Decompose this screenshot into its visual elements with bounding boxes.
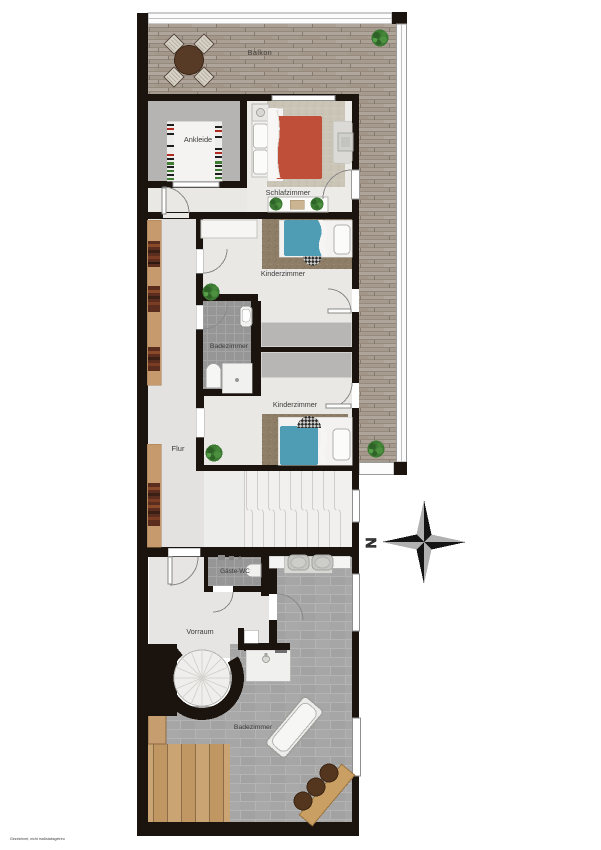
svg-text:Badezimmer: Badezimmer bbox=[234, 724, 273, 731]
svg-text:Vorraum: Vorraum bbox=[186, 627, 213, 636]
svg-text:Gäste-WC: Gäste-WC bbox=[220, 568, 250, 575]
svg-text:Ankleide: Ankleide bbox=[184, 135, 212, 144]
svg-text:Flur: Flur bbox=[172, 444, 185, 453]
svg-text:Gezeichnet, nicht maßstabsgetr: Gezeichnet, nicht maßstabsgetreu bbox=[10, 837, 65, 841]
svg-text:Kinderzimmer: Kinderzimmer bbox=[273, 400, 318, 409]
svg-text:N: N bbox=[363, 538, 380, 549]
svg-text:Balkon: Balkon bbox=[248, 50, 272, 57]
svg-text:Kinderzimmer: Kinderzimmer bbox=[261, 269, 306, 278]
svg-text:Badezimmer: Badezimmer bbox=[210, 343, 249, 350]
svg-text:Schlafzimmer: Schlafzimmer bbox=[266, 188, 311, 197]
